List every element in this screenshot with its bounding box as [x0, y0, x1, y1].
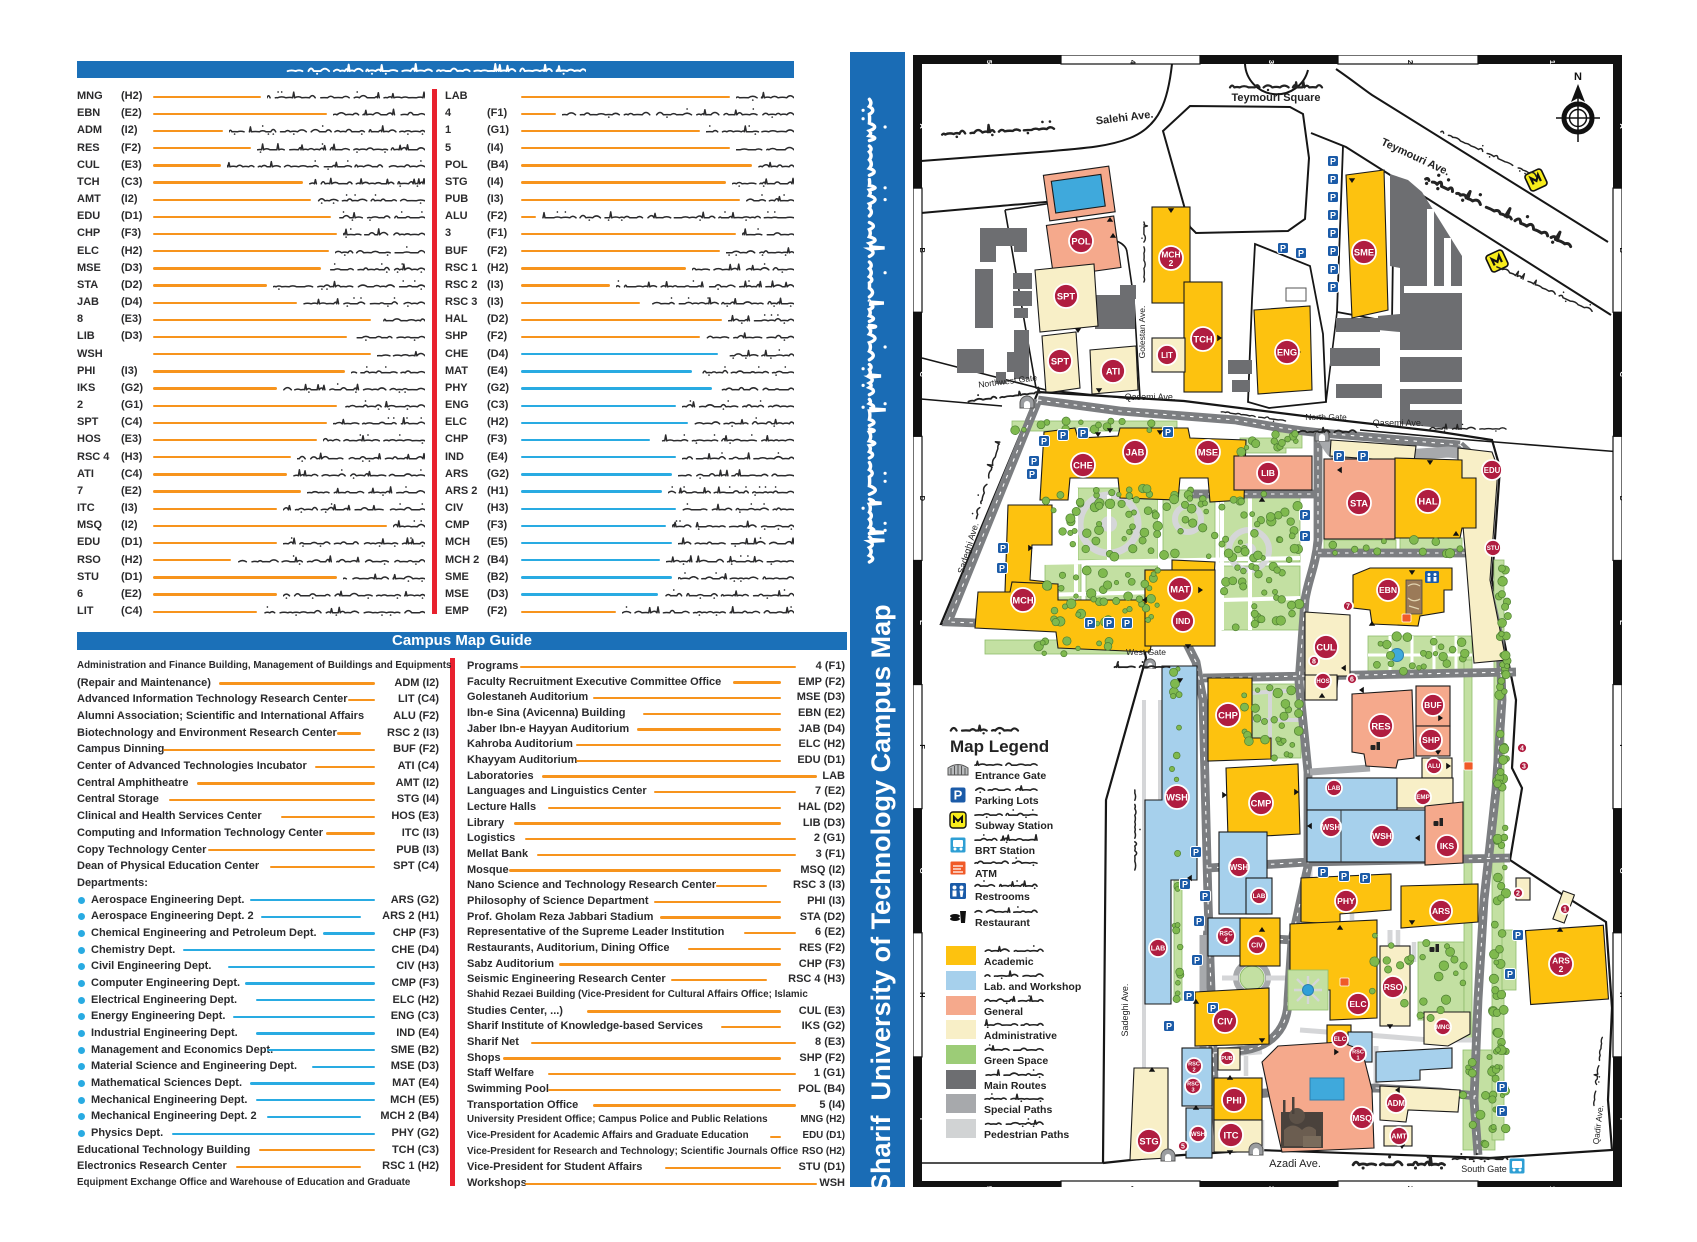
svg-text:WSH: WSH	[1230, 863, 1249, 872]
svg-text:WSH: WSH	[1322, 823, 1341, 832]
svg-text:5: 5	[1181, 1144, 1185, 1151]
svg-text:P: P	[1060, 430, 1066, 440]
svg-text:P: P	[1330, 228, 1336, 238]
svg-text:LIT: LIT	[1161, 351, 1173, 360]
svg-text:Azadi Ave.: Azadi Ave.	[1269, 1158, 1321, 1170]
svg-text:EBN: EBN	[1379, 585, 1397, 595]
svg-text:Sharif University of Technolo: Sharif University of Technology Campus M…	[866, 604, 896, 1187]
svg-text:SME: SME	[1354, 247, 1374, 257]
svg-text:P: P	[1000, 543, 1006, 553]
svg-text:Teymouri Square: Teymouri Square	[1231, 92, 1320, 104]
svg-text:Qasemi Ave.: Qasemi Ave.	[1373, 418, 1424, 428]
svg-text:2: 2	[1406, 60, 1415, 64]
svg-text:P: P	[1302, 510, 1308, 520]
svg-text:STU: STU	[1487, 545, 1500, 552]
svg-text:PUB: PUB	[1221, 1056, 1233, 1062]
svg-text:WSH: WSH	[1191, 1131, 1206, 1138]
svg-text:P: P	[1360, 451, 1366, 461]
svg-text:CHP: CHP	[1218, 710, 1238, 720]
svg-text:MAT: MAT	[1170, 584, 1190, 594]
svg-text:ELC: ELC	[1349, 999, 1366, 1009]
svg-text:P: P	[1210, 1003, 1216, 1013]
svg-text:ENG: ENG	[1277, 347, 1297, 357]
svg-text:P: P	[1330, 156, 1336, 166]
svg-text:Qasemi Ave.: Qasemi Ave.	[1125, 392, 1176, 402]
svg-text:P: P	[1031, 456, 1037, 466]
svg-text:4: 4	[1520, 746, 1524, 753]
svg-text:P: P	[1202, 891, 1208, 901]
svg-text:P: P	[1087, 618, 1093, 628]
svg-text:Restaurant: Restaurant	[975, 917, 1030, 929]
svg-text:P: P	[1320, 867, 1326, 877]
svg-text:P: P	[1330, 246, 1336, 256]
svg-text:Academic: Academic	[984, 956, 1034, 968]
svg-text:N: N	[1574, 71, 1582, 83]
svg-text:Main Routes: Main Routes	[984, 1080, 1047, 1092]
svg-text:Map Legend: Map Legend	[950, 737, 1049, 756]
svg-text:2: 2	[1169, 258, 1174, 268]
svg-text:MCH: MCH	[1012, 595, 1034, 605]
svg-text:ITC: ITC	[1223, 1130, 1238, 1140]
svg-text:JAB: JAB	[1126, 447, 1145, 457]
svg-text:Sadeghi Ave.: Sadeghi Ave.	[1120, 984, 1130, 1037]
svg-text:H: H	[918, 992, 927, 997]
svg-text:BRT Station: BRT Station	[975, 845, 1035, 857]
svg-text:G: G	[1618, 868, 1622, 874]
svg-text:LIB: LIB	[1261, 468, 1275, 478]
svg-text:1: 1	[1563, 907, 1567, 914]
svg-text:A: A	[1618, 123, 1622, 129]
svg-text:P: P	[1124, 618, 1130, 628]
svg-text:2: 2	[1559, 964, 1564, 974]
svg-text:EMP: EMP	[1416, 794, 1430, 801]
svg-text:P: P	[1499, 1106, 1505, 1116]
svg-text:3: 3	[1267, 1186, 1276, 1187]
svg-text:Parking Lots: Parking Lots	[975, 795, 1039, 807]
svg-text:C: C	[1618, 372, 1622, 378]
svg-text:LAB: LAB	[1151, 946, 1165, 953]
svg-text:Lab. and Workshop: Lab. and Workshop	[984, 981, 1081, 993]
svg-text:HAL: HAL	[1418, 496, 1437, 506]
svg-text:P: P	[1186, 991, 1192, 1001]
svg-text:STG: STG	[1139, 1136, 1158, 1146]
svg-text:CUL: CUL	[1316, 642, 1335, 652]
svg-text:SPT: SPT	[1051, 356, 1069, 366]
svg-text:RSO: RSO	[1384, 982, 1403, 992]
svg-text:F: F	[1618, 744, 1622, 749]
svg-text:North Gate: North Gate	[1305, 412, 1347, 422]
svg-text:H: H	[1618, 992, 1622, 997]
svg-text:P: P	[1507, 969, 1513, 979]
svg-text:South Gate: South Gate	[1461, 1164, 1507, 1174]
svg-text:P: P	[1330, 282, 1336, 292]
svg-text:General: General	[984, 1006, 1023, 1018]
svg-text:CMP: CMP	[1251, 798, 1272, 808]
svg-text:ATI: ATI	[1106, 366, 1120, 376]
svg-text:P: P	[1280, 243, 1286, 253]
svg-text:POL: POL	[1071, 236, 1091, 246]
svg-text:Subway Station: Subway Station	[975, 820, 1053, 832]
svg-text:P: P	[1194, 955, 1200, 965]
svg-text:SHP: SHP	[1422, 735, 1440, 745]
svg-text:6: 6	[1350, 677, 1354, 684]
svg-text:Entrance Gate: Entrance Gate	[975, 770, 1046, 782]
svg-text:P: P	[1515, 930, 1521, 940]
svg-text:MSE: MSE	[1198, 447, 1218, 457]
svg-text:Golestan Ave.: Golestan Ave.	[1137, 306, 1147, 359]
svg-text:P: P	[1029, 469, 1035, 479]
svg-text:4: 4	[1129, 1186, 1138, 1187]
svg-text:P: P	[1302, 531, 1308, 541]
svg-text:P: P	[954, 788, 963, 803]
svg-text:P: P	[999, 563, 1005, 573]
svg-text:3: 3	[1267, 60, 1276, 64]
svg-text:P: P	[1330, 174, 1336, 184]
svg-text:MSQ: MSQ	[1352, 1113, 1372, 1123]
svg-text:LAB: LAB	[1328, 785, 1341, 792]
svg-text:2: 2	[1406, 1186, 1415, 1187]
svg-text:F: F	[918, 744, 927, 749]
svg-text:RES: RES	[1371, 721, 1390, 731]
svg-text:SPT: SPT	[1057, 291, 1075, 301]
svg-text:C: C	[918, 372, 927, 378]
svg-text:P: P	[1165, 427, 1171, 437]
svg-text:CHE: CHE	[1073, 460, 1093, 470]
svg-text:TCH: TCH	[1193, 334, 1212, 344]
svg-text:8: 8	[1312, 659, 1316, 666]
svg-text:P: P	[1499, 1082, 1505, 1092]
svg-text:I: I	[1618, 1118, 1622, 1120]
svg-text:I: I	[918, 1118, 927, 1120]
svg-text:CIV: CIV	[1251, 943, 1263, 950]
svg-text:5: 5	[985, 60, 994, 64]
svg-text:P: P	[1041, 436, 1047, 446]
svg-text:3: 3	[1522, 764, 1526, 771]
svg-text:P: P	[1080, 428, 1086, 438]
svg-text:4: 4	[1224, 937, 1228, 944]
svg-text:P: P	[1330, 264, 1336, 274]
svg-text:A: A	[918, 123, 927, 129]
svg-text:LAB: LAB	[1253, 893, 1266, 900]
svg-text:P: P	[1341, 871, 1347, 881]
svg-text:PHY: PHY	[1337, 896, 1355, 906]
svg-text:BUF: BUF	[1424, 700, 1442, 710]
svg-text:2: 2	[1192, 1067, 1195, 1073]
svg-text:B: B	[918, 247, 927, 253]
svg-text:P: P	[1298, 248, 1304, 258]
svg-text:Pedestrian Paths: Pedestrian Paths	[984, 1129, 1069, 1141]
svg-text:ELC: ELC	[1334, 1036, 1347, 1043]
svg-text:PHI: PHI	[1226, 1095, 1242, 1105]
svg-text:ALU: ALU	[1428, 763, 1441, 770]
svg-text:3: 3	[1191, 1087, 1194, 1093]
svg-text:MNG: MNG	[1436, 1024, 1451, 1031]
svg-text:7: 7	[1346, 604, 1350, 611]
svg-text:P: P	[1330, 192, 1336, 202]
svg-text:P: P	[1106, 618, 1112, 628]
svg-text:P: P	[1196, 916, 1202, 926]
svg-text:ATM: ATM	[975, 868, 997, 880]
svg-text:E: E	[918, 620, 927, 625]
svg-text:P: P	[1362, 873, 1368, 883]
svg-text:AMT: AMT	[1391, 1134, 1407, 1141]
svg-text:P: P	[1166, 1021, 1172, 1031]
svg-text:EDU: EDU	[1484, 466, 1501, 475]
svg-text:P: P	[1193, 847, 1199, 857]
svg-text:G: G	[918, 868, 927, 874]
svg-text:Green Space: Green Space	[984, 1055, 1048, 1067]
svg-text:IND: IND	[1176, 616, 1191, 626]
svg-text:P: P	[1182, 879, 1188, 889]
svg-text:ADM: ADM	[1387, 1099, 1405, 1108]
svg-text:West Gate: West Gate	[1126, 647, 1166, 657]
svg-text:WSH: WSH	[1372, 831, 1392, 841]
svg-text:HOS: HOS	[1316, 678, 1330, 685]
svg-text:ARS: ARS	[1432, 906, 1450, 916]
svg-text:Administrative: Administrative	[984, 1030, 1057, 1042]
svg-text:Special Paths: Special Paths	[984, 1104, 1052, 1116]
svg-text:D: D	[1618, 496, 1622, 502]
svg-text:E: E	[1618, 620, 1622, 625]
svg-text:IKS: IKS	[1440, 841, 1455, 851]
svg-text:STA: STA	[1350, 498, 1368, 508]
svg-text:Restrooms: Restrooms	[975, 891, 1030, 903]
svg-text:5: 5	[985, 1186, 994, 1187]
svg-text:1: 1	[1548, 60, 1557, 64]
svg-text:P: P	[1336, 451, 1342, 461]
svg-text:WSH: WSH	[1166, 792, 1188, 802]
svg-text:P: P	[1330, 210, 1336, 220]
svg-text:B: B	[1618, 247, 1622, 253]
svg-text:2: 2	[1516, 891, 1520, 898]
svg-text:CIV: CIV	[1217, 1016, 1233, 1026]
svg-text:1: 1	[1356, 1055, 1359, 1061]
svg-text:1: 1	[1548, 1186, 1557, 1187]
svg-text:D: D	[918, 496, 927, 502]
